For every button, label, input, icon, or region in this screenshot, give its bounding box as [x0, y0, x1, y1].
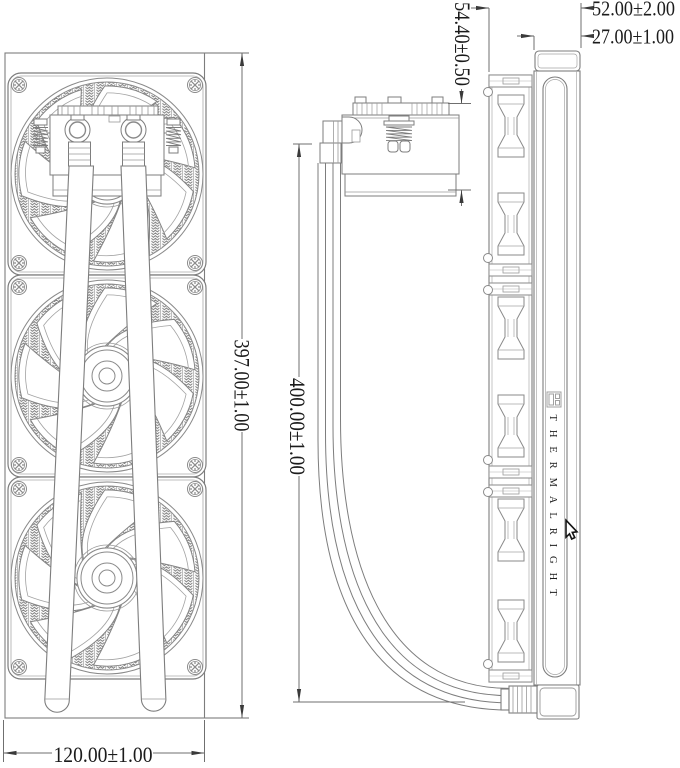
svg-text:54.40±0.50: 54.40±0.50 — [450, 2, 475, 86]
svg-text:400.00±1.00: 400.00±1.00 — [285, 378, 310, 475]
svg-text:27.00±1.00: 27.00±1.00 — [592, 25, 674, 49]
svg-text:52.00±2.00: 52.00±2.00 — [592, 0, 675, 21]
svg-text:120.00±1.00: 120.00±1.00 — [54, 742, 153, 767]
svg-text:397.00±1.00: 397.00±1.00 — [230, 340, 255, 432]
